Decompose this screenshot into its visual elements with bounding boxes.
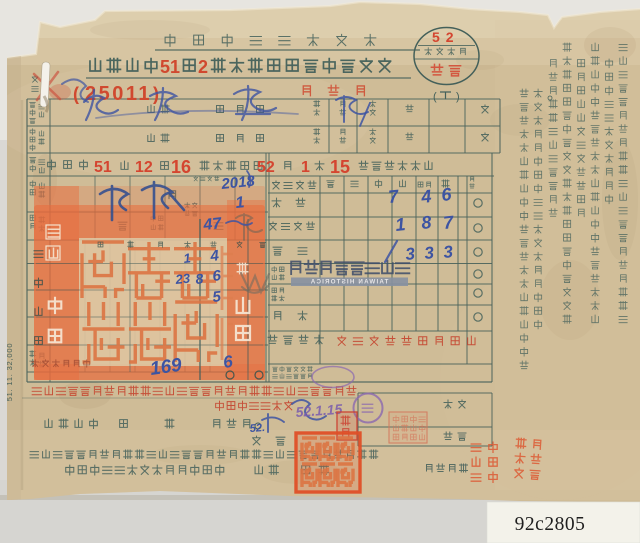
svg-text:52.1.15: 52.1.15 (295, 401, 343, 420)
svg-text:1: 1 (235, 194, 246, 212)
svg-text:169: 169 (149, 355, 184, 380)
svg-text:TAIWAN HISTORICA: TAIWAN HISTORICA (310, 279, 389, 286)
svg-text:2: 2 (198, 57, 208, 77)
svg-text:51: 51 (94, 159, 112, 176)
svg-text:52: 52 (432, 29, 460, 45)
svg-text:12: 12 (135, 159, 153, 176)
svg-text:): ) (456, 91, 460, 103)
svg-text:23: 23 (174, 270, 192, 287)
svg-text:52: 52 (257, 159, 275, 176)
svg-text:51. 11. 32,000: 51. 11. 32,000 (5, 343, 14, 402)
svg-text:1: 1 (301, 159, 310, 176)
svg-text:47: 47 (202, 215, 224, 234)
svg-text:1: 1 (394, 214, 406, 235)
svg-text:8: 8 (420, 212, 432, 233)
svg-text:4: 4 (419, 186, 432, 207)
svg-text:16: 16 (171, 157, 191, 177)
svg-text:92c2805: 92c2805 (515, 514, 586, 535)
svg-text:52.: 52. (249, 422, 265, 435)
svg-text:51: 51 (160, 57, 180, 77)
svg-text:(: ( (433, 91, 437, 103)
svg-text:(: ( (73, 84, 79, 104)
svg-text:15: 15 (330, 157, 350, 177)
svg-text:25011: 25011 (85, 83, 152, 105)
